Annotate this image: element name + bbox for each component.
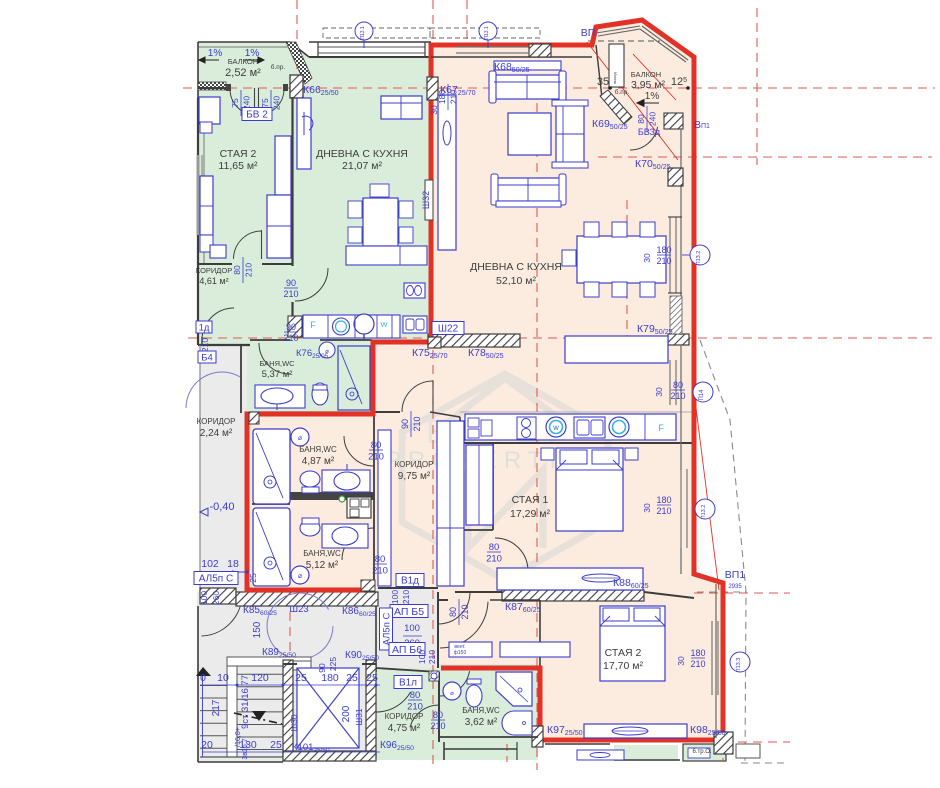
svg-text:В1д: В1д — [401, 576, 419, 587]
svg-text:80: 80 — [433, 710, 443, 720]
svg-text:Ш30: Ш30 — [289, 714, 299, 732]
svg-text:⌀: ⌀ — [298, 435, 302, 442]
svg-text:0: 0 — [200, 672, 206, 684]
svg-text:П13.2: П13.2 — [696, 251, 702, 266]
svg-text:3,95 м²: 3,95 м² — [631, 79, 666, 91]
svg-text:П13.1: П13.1 — [360, 26, 366, 40]
svg-text:КОРИДОР: КОРИДОР — [395, 460, 434, 469]
svg-text:АЛ5п С: АЛ5п С — [199, 574, 233, 585]
svg-text:18: 18 — [227, 558, 239, 570]
svg-text:217: 217 — [211, 699, 222, 716]
svg-text:выход: выход — [612, 72, 617, 84]
svg-text:100: 100 — [199, 591, 209, 605]
svg-text:П14: П14 — [699, 389, 705, 401]
svg-text:100: 100 — [404, 623, 420, 634]
svg-text:210: 210 — [401, 590, 411, 604]
svg-text:9ст 31/16,77: 9ст 31/16,77 — [240, 675, 251, 729]
svg-text:210: 210 — [283, 333, 298, 343]
svg-text:180: 180 — [321, 672, 339, 684]
svg-text:ДНЕВНА С КУХНЯ: ДНЕВНА С КУХНЯ — [316, 148, 408, 160]
svg-text:Ш23: Ш23 — [289, 604, 308, 615]
svg-text:СТАЯ 2: СТАЯ 2 — [605, 647, 642, 659]
svg-text:1%: 1% — [645, 91, 660, 102]
svg-text:25: 25 — [366, 672, 378, 684]
svg-text:180: 180 — [656, 245, 671, 255]
svg-text:21,07 м²: 21,07 м² — [342, 160, 382, 172]
svg-text:4,87 м²: 4,87 м² — [302, 456, 335, 467]
svg-text:210: 210 — [200, 338, 210, 352]
svg-text:80: 80 — [489, 542, 500, 553]
svg-text:КОРИДОР: КОРИДОР — [196, 266, 232, 275]
svg-text:2,52 м²: 2,52 м² — [225, 67, 261, 79]
svg-text:4,75 м²: 4,75 м² — [388, 723, 421, 734]
svg-text:СТАЯ 1: СТАЯ 1 — [512, 494, 549, 506]
svg-text:БВЗд: БВЗд — [638, 127, 661, 137]
svg-text:90: 90 — [286, 322, 296, 332]
svg-text:210: 210 — [427, 650, 437, 664]
svg-text:БВ 2: БВ 2 — [246, 110, 268, 121]
svg-text:25: 25 — [248, 573, 258, 583]
svg-text:225: 225 — [328, 657, 338, 671]
svg-text:210: 210 — [670, 391, 685, 401]
svg-text:1д: 1д — [199, 322, 210, 333]
svg-text:БАНЯ,WC: БАНЯ,WC — [303, 549, 341, 558]
svg-text:1%: 1% — [245, 48, 260, 59]
svg-text:150: 150 — [252, 621, 263, 638]
svg-text:30: 30 — [642, 503, 652, 513]
svg-text:3,62 м²: 3,62 м² — [465, 717, 498, 728]
svg-text:БАЛКОН: БАЛКОН — [631, 70, 661, 79]
svg-text:200: 200 — [341, 705, 352, 722]
svg-text:П13.3: П13.3 — [736, 658, 742, 673]
svg-text:25: 25 — [346, 672, 358, 684]
svg-text:17,29 м²: 17,29 м² — [510, 508, 550, 520]
svg-text:210: 210 — [656, 256, 671, 266]
svg-text:2935: 2935 — [728, 584, 742, 590]
svg-text:F: F — [658, 423, 664, 433]
svg-text:5,37 м²: 5,37 м² — [262, 369, 293, 380]
svg-text:240: 240 — [648, 112, 658, 126]
svg-text:11,65 м²: 11,65 м² — [218, 160, 258, 172]
svg-text:80: 80 — [410, 690, 421, 701]
svg-text:30: 30 — [676, 656, 686, 666]
svg-text:4,61 м²: 4,61 м² — [199, 276, 228, 286]
svg-text:210: 210 — [486, 554, 502, 565]
svg-text:17,70 м²: 17,70 м² — [603, 660, 643, 672]
svg-text:80: 80 — [371, 440, 382, 451]
svg-text:90: 90 — [286, 278, 296, 288]
svg-text:30: 30 — [429, 105, 439, 115]
svg-text:В1л: В1л — [399, 678, 417, 689]
svg-text:210: 210 — [412, 416, 422, 431]
svg-text:120: 120 — [251, 672, 269, 684]
svg-text:ВП: ВП — [581, 27, 596, 39]
svg-text:80: 80 — [636, 114, 646, 124]
svg-text:75: 75 — [260, 98, 270, 108]
svg-text:30: 30 — [654, 387, 664, 397]
svg-text:1%: 1% — [208, 48, 223, 59]
svg-text:W: W — [380, 320, 388, 329]
svg-text:5,12 м²: 5,12 м² — [306, 560, 339, 571]
svg-text:240: 240 — [272, 96, 282, 110]
svg-text:180: 180 — [690, 648, 705, 658]
svg-text:130: 130 — [239, 739, 257, 751]
svg-text:80: 80 — [673, 380, 683, 390]
svg-text:ВП1: ВП1 — [725, 569, 746, 581]
svg-text:210: 210 — [372, 566, 388, 577]
svg-text:АП Б5: АП Б5 — [394, 606, 424, 618]
svg-text:Б4: Б4 — [201, 352, 213, 363]
svg-text:10: 10 — [217, 672, 229, 684]
svg-text:260: 260 — [211, 591, 221, 605]
svg-text:АЛ5п С: АЛ5п С — [381, 613, 392, 646]
svg-text:180: 180 — [656, 495, 671, 505]
svg-text:ДНЕВНА С КУХНЯ: ДНЕВНА С КУХНЯ — [470, 261, 562, 273]
svg-text:6.тр.О.: 6.тр.О. — [692, 749, 711, 755]
svg-text:80: 80 — [232, 265, 242, 275]
svg-text:75: 75 — [230, 98, 240, 108]
svg-text:б.пр.: б.пр. — [615, 88, 630, 96]
svg-text:П13.1: П13.1 — [484, 26, 490, 40]
svg-text:100: 100 — [417, 650, 427, 664]
svg-text:КОРИДОР: КОРИДОР — [197, 417, 236, 426]
svg-text:Ш32: Ш32 — [421, 191, 431, 209]
svg-text:52,10 м²: 52,10 м² — [496, 275, 536, 287]
svg-text:210: 210 — [656, 506, 671, 516]
svg-text:210: 210 — [460, 604, 470, 619]
svg-text:90: 90 — [400, 419, 410, 429]
svg-text:30: 30 — [642, 253, 652, 263]
svg-text:Ш31: Ш31 — [354, 708, 364, 726]
svg-text:210: 210 — [283, 289, 298, 299]
svg-text:9,75 м²: 9,75 м² — [398, 471, 431, 482]
svg-text:210: 210 — [244, 263, 254, 277]
svg-text:КОРИДОР: КОРИДОР — [385, 712, 424, 721]
svg-text:102: 102 — [201, 558, 219, 570]
svg-text:б.пр.: б.пр. — [271, 63, 286, 71]
svg-text:35: 35 — [597, 76, 609, 88]
svg-text:Ш22: Ш22 — [438, 324, 459, 335]
svg-text:2,24 м²: 2,24 м² — [200, 428, 233, 439]
svg-text:25: 25 — [270, 739, 282, 751]
svg-text:210: 210 — [430, 721, 445, 731]
svg-text:W: W — [553, 426, 559, 432]
svg-text:БАНЯ,WC: БАНЯ,WC — [299, 445, 337, 454]
svg-text:⌀: ⌀ — [298, 573, 302, 580]
svg-text:25: 25 — [295, 672, 307, 684]
svg-text:100: 100 — [390, 590, 400, 604]
svg-text:ф150: ф150 — [454, 650, 467, 656]
svg-text:СТАЯ 2: СТАЯ 2 — [220, 148, 257, 160]
svg-text:БАНЯ,WC: БАНЯ,WC — [462, 706, 500, 715]
svg-text:20: 20 — [201, 739, 213, 751]
svg-text:210: 210 — [407, 702, 423, 713]
svg-text:80: 80 — [448, 607, 458, 617]
svg-text:-0,40: -0,40 — [209, 501, 234, 513]
svg-text:⌀: ⌀ — [450, 691, 454, 697]
svg-text:210: 210 — [368, 452, 384, 463]
svg-text:П13.2: П13.2 — [701, 505, 707, 520]
svg-text:БАНЯ,WC: БАНЯ,WC — [259, 359, 295, 368]
svg-text:210: 210 — [690, 659, 705, 669]
svg-text:80: 80 — [375, 554, 386, 565]
svg-text:F: F — [310, 320, 316, 330]
